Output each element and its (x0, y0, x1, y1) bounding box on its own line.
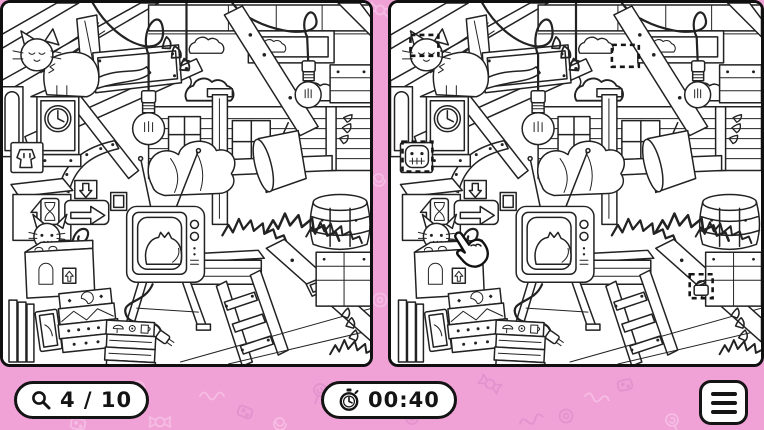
original-panel[interactable] (0, 0, 373, 367)
attic-scene-right (391, 3, 761, 364)
difference-face-poster (402, 144, 431, 171)
differences-counter: 4 / 10 (14, 381, 149, 419)
modified-panel[interactable] (388, 0, 764, 367)
timer-label: 00:40 (368, 388, 440, 412)
differences-counter-label: 4 / 10 (60, 388, 132, 412)
timer-display: 00:40 (321, 381, 457, 419)
attic-scene-left (3, 3, 370, 364)
stopwatch-icon (338, 388, 360, 412)
magnifier-icon (31, 390, 52, 411)
menu-button[interactable] (699, 380, 748, 425)
